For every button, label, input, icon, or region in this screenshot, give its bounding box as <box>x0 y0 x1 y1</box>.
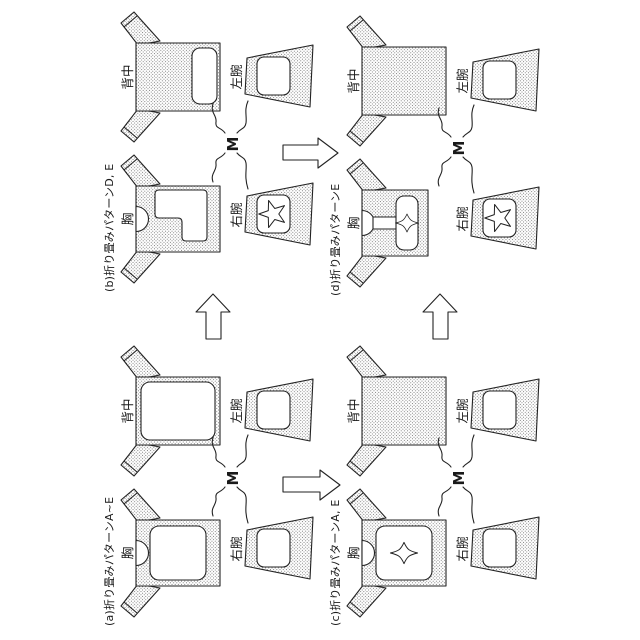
back-shirt <box>121 346 220 476</box>
back-left-sleeve <box>121 443 160 476</box>
front-right-sleeve <box>347 159 386 192</box>
panel-d: (d)折り畳みパターンE <box>328 16 539 296</box>
size-label: M <box>450 471 468 486</box>
left-arm-label: 左腕 <box>229 398 244 423</box>
back-shirt <box>121 12 220 142</box>
front-shirt <box>121 155 220 283</box>
left-arm-piece <box>245 45 313 107</box>
right-arm-piece <box>471 517 539 579</box>
back-shirt <box>347 346 446 476</box>
right-arm-label: 右腕 <box>229 202 244 227</box>
panel-c-label: (c)折り畳みパターンA, E <box>328 499 342 626</box>
back-right-sleeve <box>347 16 386 49</box>
left-arm-label: 左腕 <box>229 64 244 89</box>
right-arm-label: 右腕 <box>455 206 470 231</box>
arrow-down-icon-b-to-d <box>283 138 338 168</box>
front-shirt <box>347 489 446 617</box>
front-label: 胸 <box>346 217 361 230</box>
front-shirt <box>121 489 220 617</box>
patent-figure-page: (a)折り畳みパターンA~E 胸 <box>0 0 640 640</box>
panel-c: (c)折り畳みパターンA, E 胸 <box>328 346 539 626</box>
back-body <box>362 47 446 115</box>
arrow-down-icon-a-to-c <box>283 470 340 500</box>
front-print-neck-bar <box>373 217 398 229</box>
back-print <box>141 382 215 440</box>
back-body <box>362 377 446 445</box>
back-right-sleeve <box>121 346 160 379</box>
front-right-sleeve <box>121 155 160 188</box>
size-label: M <box>224 471 242 486</box>
panel-a: (a)折り畳みパターンA~E 胸 <box>102 346 313 626</box>
size-label: M <box>224 137 242 152</box>
arrow-right-icon-c-to-d <box>423 294 457 339</box>
back-left-sleeve <box>121 109 160 142</box>
left-arm-piece <box>245 379 313 441</box>
back-label: 背中 <box>120 64 135 89</box>
front-left-sleeve <box>347 254 386 287</box>
back-print <box>192 48 217 104</box>
back-shirt <box>347 16 446 146</box>
front-label: 胸 <box>346 547 361 560</box>
front-right-sleeve <box>347 489 386 522</box>
front-label: 胸 <box>120 213 135 226</box>
left-arm-label: 左腕 <box>455 398 470 423</box>
front-print <box>150 526 206 580</box>
panel-d-label: (d)折り畳みパターンE <box>328 184 342 296</box>
panel-a-label: (a)折り畳みパターンA~E <box>102 497 116 626</box>
front-left-sleeve <box>347 584 386 617</box>
left-arm-label: 左腕 <box>455 68 470 93</box>
front-left-sleeve <box>121 584 160 617</box>
back-right-sleeve <box>347 346 386 379</box>
back-label: 背中 <box>346 398 361 423</box>
back-right-sleeve <box>121 12 160 45</box>
front-right-sleeve <box>121 489 160 522</box>
right-arm-label: 右腕 <box>455 536 470 561</box>
panel-b: (b)折り畳みパターンD, E <box>102 12 313 292</box>
right-arm-label: 右腕 <box>229 536 244 561</box>
arrow-right-icon-a-to-b <box>196 294 230 339</box>
back-label: 背中 <box>346 68 361 93</box>
left-arm-piece <box>471 379 539 441</box>
left-arm-piece <box>471 49 539 111</box>
folding-pattern-diagram: (a)折り畳みパターンA~E 胸 <box>0 0 640 640</box>
back-left-sleeve <box>347 443 386 476</box>
back-left-sleeve <box>347 113 386 146</box>
size-label: M <box>450 141 468 156</box>
panel-b-label: (b)折り畳みパターンD, E <box>102 164 116 292</box>
back-label: 背中 <box>120 398 135 423</box>
front-label: 胸 <box>120 547 135 560</box>
rotated-figure-container: (a)折り畳みパターンA~E 胸 <box>0 0 640 640</box>
right-arm-piece <box>245 517 313 579</box>
front-left-sleeve <box>121 250 160 283</box>
